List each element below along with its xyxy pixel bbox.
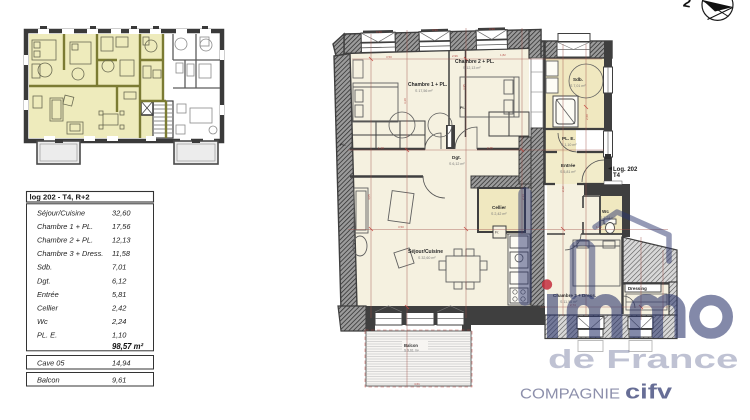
svg-text:Séjour/Cuisine: Séjour/Cuisine	[37, 208, 85, 217]
svg-text:5,81: 5,81	[112, 290, 126, 299]
svg-text:Balcon: Balcon	[404, 343, 418, 348]
svg-text:Fr.: Fr.	[495, 231, 499, 235]
svg-text:S 1,10 m²: S 1,10 m²	[561, 143, 577, 147]
svg-text:Cellier: Cellier	[492, 205, 506, 210]
svg-text:98,57 m²: 98,57 m²	[112, 342, 144, 351]
svg-text:Séjour/Cuisine: Séjour/Cuisine	[408, 249, 443, 255]
svg-text:Dressing: Dressing	[628, 286, 647, 291]
svg-text:T4: T4	[613, 173, 621, 179]
svg-text:COMPAGNIE: COMPAGNIE	[520, 386, 620, 403]
svg-text:4,05: 4,05	[367, 194, 371, 200]
svg-text:S 12,13 m²: S 12,13 m²	[463, 66, 481, 70]
svg-text:6,12: 6,12	[112, 276, 126, 285]
svg-text:Chambre 1 + PL.: Chambre 1 + PL.	[37, 222, 93, 231]
svg-text:7,01: 7,01	[112, 263, 126, 272]
svg-text:PL. E.: PL. E.	[562, 136, 575, 141]
svg-text:3,95: 3,95	[462, 84, 466, 90]
svg-text:Sdb.: Sdb.	[573, 77, 583, 82]
svg-text:11,58: 11,58	[112, 249, 131, 258]
svg-text:Chambre 2 + PL.: Chambre 2 + PL.	[455, 59, 495, 65]
svg-text:9,61: 9,61	[112, 375, 126, 384]
svg-text:Balcon: Balcon	[37, 375, 60, 384]
svg-text:S 2,42 m²: S 2,42 m²	[491, 212, 507, 216]
svg-text:2,12: 2,12	[561, 186, 565, 192]
svg-text:de France: de France	[548, 345, 738, 374]
svg-text:S 9,61 m²: S 9,61 m²	[404, 349, 420, 353]
svg-text:S 32,60 m²: S 32,60 m²	[418, 256, 436, 260]
svg-text:Pl.: Pl.	[460, 106, 465, 110]
svg-text:0,90: 0,90	[489, 27, 495, 31]
svg-text:Chambre 2 + PL.: Chambre 2 + PL.	[37, 236, 93, 245]
svg-text:Chambre 1 + PL.: Chambre 1 + PL.	[408, 82, 448, 88]
svg-text:S 17,56 m²: S 17,56 m²	[415, 89, 433, 93]
svg-text:1,10: 1,10	[112, 331, 127, 340]
svg-text:Cellier: Cellier	[37, 304, 58, 313]
svg-text:17,56: 17,56	[112, 222, 131, 231]
svg-text:PL. E.: PL. E.	[37, 331, 57, 340]
svg-text:0,90: 0,90	[432, 28, 438, 32]
svg-text:2,24: 2,24	[111, 317, 126, 326]
svg-text:Entrée: Entrée	[37, 290, 59, 299]
svg-text:0,90: 0,90	[376, 30, 382, 34]
svg-text:S 5,81 m²: S 5,81 m²	[560, 170, 576, 174]
svg-text:12,13: 12,13	[112, 236, 131, 245]
svg-text:Cave 05: Cave 05	[37, 358, 65, 367]
svg-text:2,60: 2,60	[585, 114, 589, 120]
svg-text:14,94: 14,94	[112, 358, 131, 367]
svg-text:4,61: 4,61	[414, 382, 420, 386]
svg-text:3,50: 3,50	[398, 225, 404, 229]
svg-text:cifv: cifv	[625, 382, 673, 404]
svg-text:Entrée: Entrée	[561, 163, 576, 168]
svg-text:Dgt.: Dgt.	[452, 155, 461, 160]
svg-text:2,42: 2,42	[111, 304, 126, 313]
svg-text:Wc: Wc	[602, 209, 609, 214]
svg-text:Chambre 3 + Dress.: Chambre 3 + Dress.	[37, 249, 103, 258]
svg-text:1,10: 1,10	[378, 146, 384, 150]
svg-text:Dgt.: Dgt.	[37, 276, 51, 285]
svg-text:log 202 - T4, R+2: log 202 - T4, R+2	[30, 193, 90, 202]
svg-text:Sdb.: Sdb.	[37, 263, 52, 272]
svg-text:2,96: 2,96	[452, 54, 458, 58]
svg-text:S 7,01 m²: S 7,01 m²	[570, 84, 586, 88]
svg-text:1,82: 1,82	[500, 53, 506, 57]
svg-text:S 6,12 m²: S 6,12 m²	[449, 162, 465, 166]
svg-text:2,45: 2,45	[487, 146, 493, 150]
svg-text:3,20: 3,20	[403, 98, 407, 104]
svg-text:Wc: Wc	[37, 317, 48, 326]
svg-text:PL.: PL.	[340, 143, 346, 147]
svg-text:32,60: 32,60	[112, 208, 131, 217]
svg-text:3,50: 3,50	[386, 55, 392, 59]
